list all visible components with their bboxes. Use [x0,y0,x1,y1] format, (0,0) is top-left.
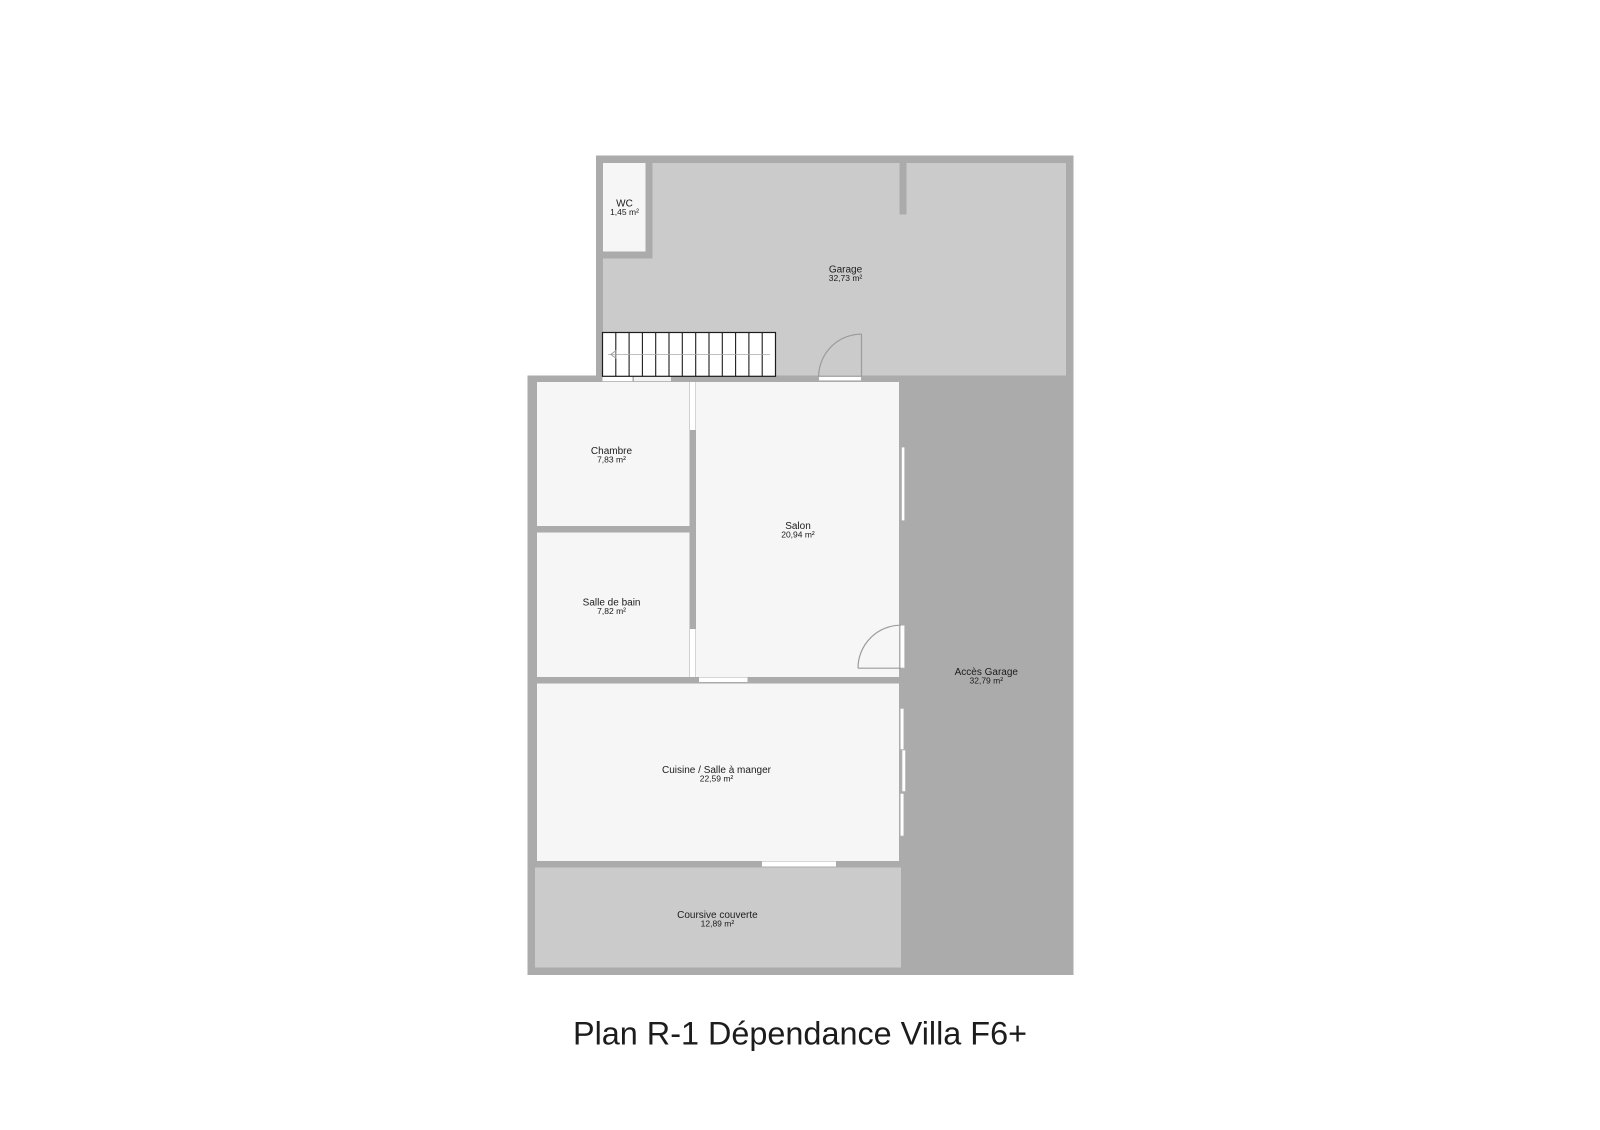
svg-text:7,83 m²: 7,83 m² [597,454,626,464]
svg-text:Plan R-1 Dépendance Villa F6+: Plan R-1 Dépendance Villa F6+ [573,1016,1027,1052]
svg-text:20,94 m²: 20,94 m² [781,530,815,540]
svg-text:7,82 m²: 7,82 m² [597,606,626,616]
svg-text:32,73 m²: 32,73 m² [829,273,863,283]
svg-text:12,89 m²: 12,89 m² [701,919,735,929]
svg-text:22,59 m²: 22,59 m² [700,773,734,783]
svg-text:1,45 m²: 1,45 m² [610,207,639,217]
svg-text:32,79 m²: 32,79 m² [970,676,1004,686]
